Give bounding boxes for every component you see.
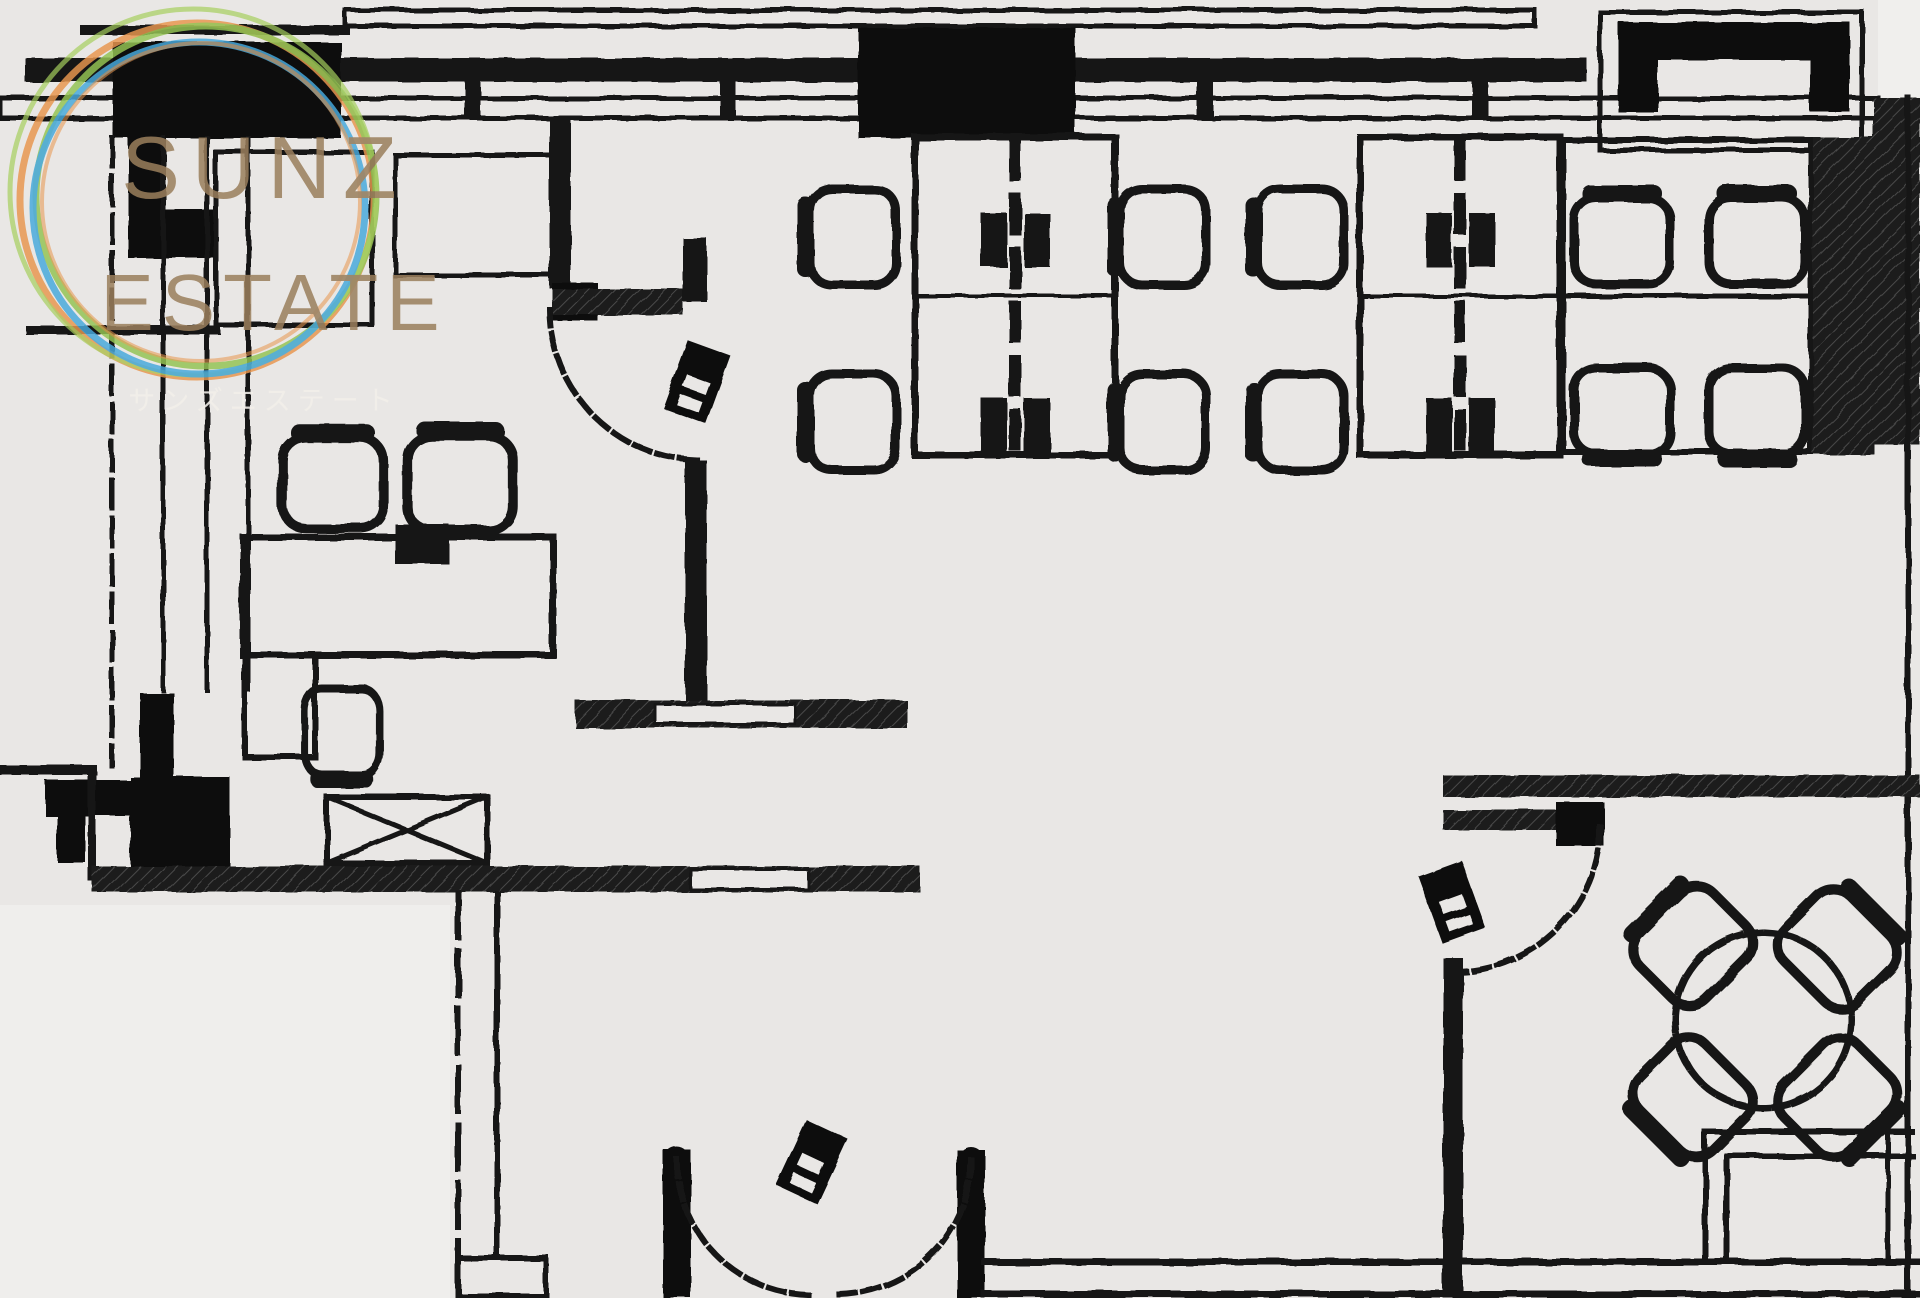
mid-wall-opening [655, 704, 795, 724]
pillar-top-left-foot [128, 210, 216, 258]
window-mullion [720, 58, 736, 118]
meeting-room-north-wall [1443, 775, 1920, 797]
meeting-room-west-wall [1443, 958, 1463, 1298]
east-wall-hatched [1873, 98, 1920, 445]
floor-plan-page: SUNZ ESTATE サンズエステート [0, 0, 1920, 1298]
outside-area-bottom-left [0, 905, 450, 1298]
partition-wall-upper [549, 118, 571, 288]
desk-strip [1813, 137, 1875, 455]
pillar-top-center [858, 28, 1076, 138]
monitor-icon [395, 524, 449, 564]
logo-line2: ESTATE [100, 258, 447, 347]
logo-line1: SUNZ [121, 118, 409, 217]
partition-wall-lower [685, 460, 707, 705]
pillar-bottom-left-foot [57, 816, 85, 862]
window-mullion [1472, 58, 1488, 118]
window-mullion [465, 58, 481, 118]
window-mullion [1197, 58, 1213, 118]
south-wall-opening [690, 869, 808, 889]
door-leaf-open [552, 289, 683, 315]
pillar-bottom-left-stem [140, 693, 174, 785]
outside-area-top-right [1878, 0, 1920, 100]
floor-plan-drawing: SUNZ ESTATE サンズエステート [0, 0, 1920, 1298]
partition-stub [683, 238, 707, 302]
logo-subtitle: サンズエステート [128, 386, 399, 416]
